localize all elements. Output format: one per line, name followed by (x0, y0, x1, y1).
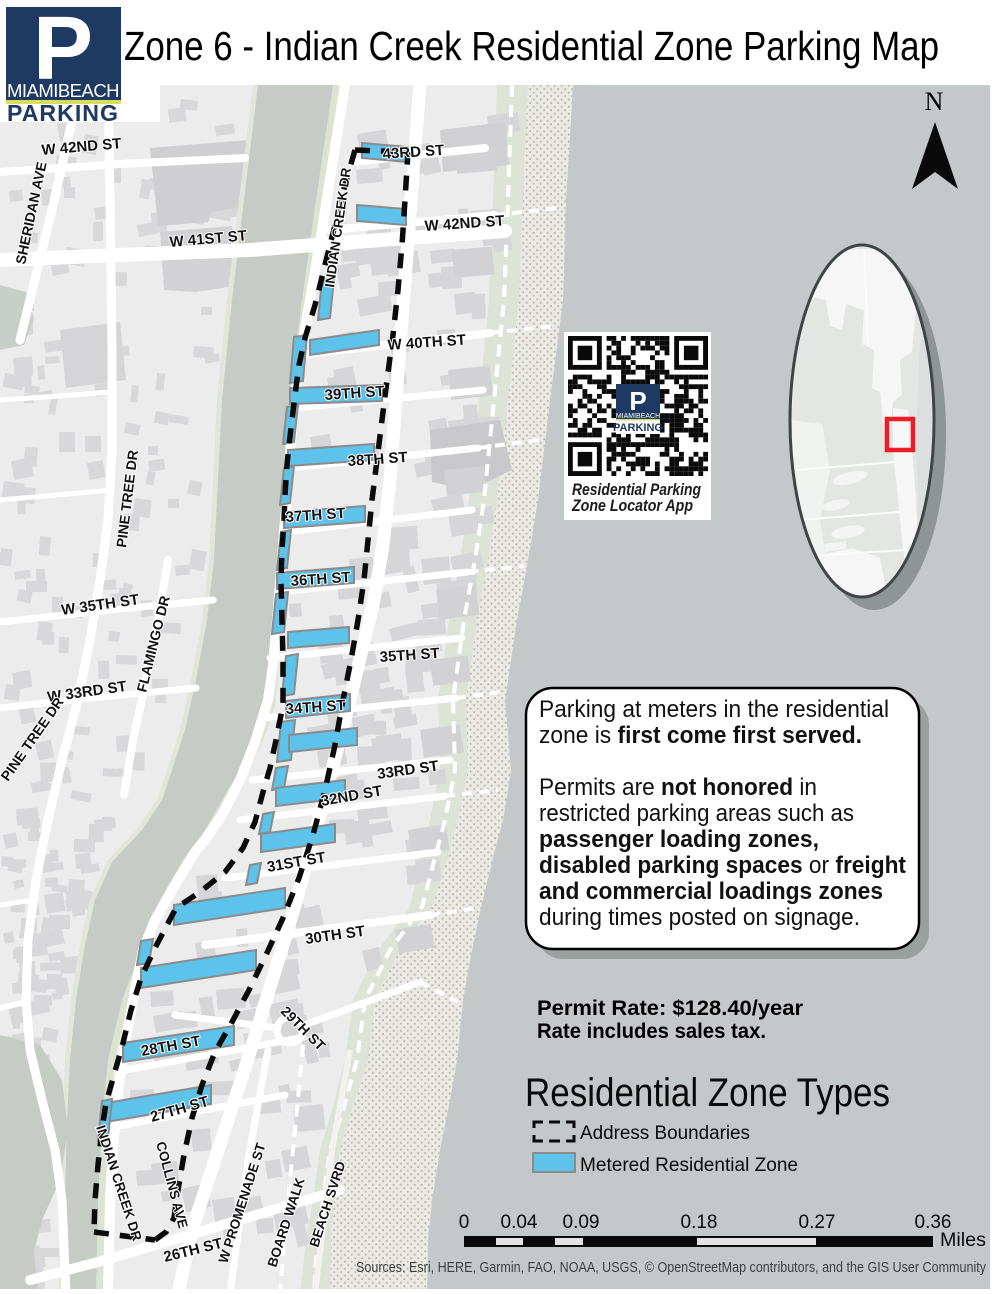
svg-text:passenger loading zones,: passenger loading zones, (539, 826, 819, 853)
svg-text:P: P (629, 386, 646, 416)
svg-text:0: 0 (459, 1212, 470, 1233)
svg-text:zone is first come first serve: zone is first come first served. (539, 722, 862, 749)
svg-text:0.09: 0.09 (563, 1212, 600, 1233)
svg-text:restricted parking areas such: restricted parking areas such as (539, 800, 854, 827)
svg-text:Zone Locator App: Zone Locator App (571, 496, 693, 515)
svg-text:and commercial loadings zones: and commercial loadings zones (539, 878, 883, 905)
svg-text:0.27: 0.27 (799, 1212, 836, 1233)
svg-text:Rate includes sales tax.: Rate includes sales tax. (537, 1020, 766, 1043)
svg-text:Zone 6 - Indian Creek Resident: Zone 6 - Indian Creek Residential Zone P… (124, 23, 939, 69)
svg-text:0.04: 0.04 (501, 1212, 538, 1233)
svg-text:0.18: 0.18 (681, 1212, 718, 1233)
svg-text:Metered Residential Zone: Metered Residential Zone (580, 1154, 798, 1176)
svg-text:N: N (925, 87, 944, 116)
svg-text:Address Boundaries: Address Boundaries (580, 1122, 750, 1144)
svg-text:Miles: Miles (940, 1230, 986, 1251)
svg-text:Residential Zone Types: Residential Zone Types (525, 1071, 890, 1115)
svg-text:MIAMIBEACH: MIAMIBEACH (7, 81, 119, 101)
svg-text:Sources: Esri, HERE, Garmin, F: Sources: Esri, HERE, Garmin, FAO, NOAA, … (356, 1259, 986, 1276)
svg-text:MIAMIBEACH: MIAMIBEACH (616, 413, 660, 420)
svg-text:disabled parking spaces or fre: disabled parking spaces or freight (539, 852, 906, 879)
svg-text:PARKING: PARKING (613, 422, 663, 434)
svg-text:Permit Rate: $128.40/year: Permit Rate: $128.40/year (537, 997, 803, 1020)
svg-text:Permits are not honored in: Permits are not honored in (539, 774, 817, 801)
svg-text:PARKING: PARKING (7, 100, 119, 126)
svg-text:during times posted on signage: during times posted on signage. (539, 904, 860, 931)
svg-text:Parking at meters in the resid: Parking at meters in the residential (539, 696, 889, 723)
